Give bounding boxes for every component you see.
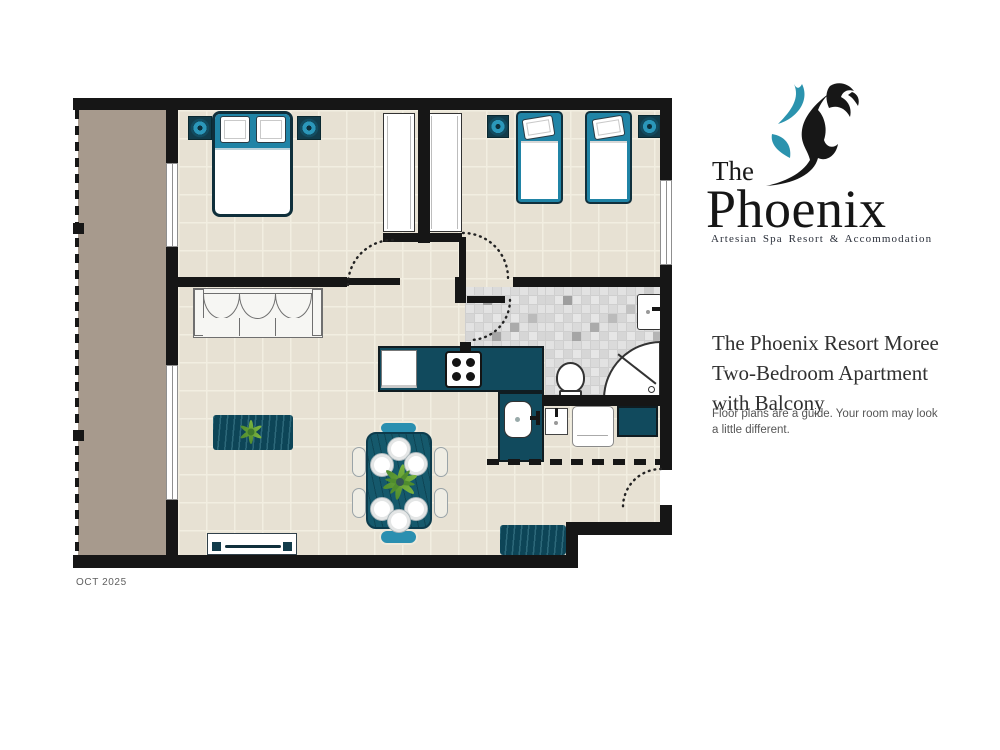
opening-dashed-line xyxy=(487,459,660,465)
sofa xyxy=(193,288,323,338)
wardrobe xyxy=(383,113,415,232)
logo-name: Phoenix xyxy=(706,178,887,240)
dining-chair xyxy=(352,447,366,477)
tv-icon xyxy=(225,545,281,548)
nightstand-lamp-icon xyxy=(638,115,661,138)
date-label: OCT 2025 xyxy=(76,577,127,588)
nightstand-lamp-icon xyxy=(297,116,321,140)
stove xyxy=(445,351,482,388)
plate xyxy=(387,509,411,533)
entry-rug xyxy=(500,525,566,555)
wall xyxy=(418,110,430,243)
disclaimer-text: Floor plans are a guide. Your room may l… xyxy=(712,406,944,438)
nightstand-lamp-icon xyxy=(188,116,212,140)
fridge xyxy=(381,350,417,388)
laundry-counter xyxy=(617,406,658,437)
kitchen-sink xyxy=(504,401,532,438)
railing-post xyxy=(73,223,84,234)
single-bed xyxy=(585,111,632,204)
dining-chair xyxy=(352,488,366,518)
washing-machine xyxy=(572,406,614,447)
door-swing-arc xyxy=(463,233,508,278)
faucet-icon xyxy=(555,408,558,417)
pillow xyxy=(256,116,286,143)
wall xyxy=(660,265,672,470)
floor-plan xyxy=(70,95,682,575)
wall xyxy=(513,277,672,287)
wall xyxy=(166,277,347,287)
logo-tagline: Artesian Spa Resort & Accommodation xyxy=(711,233,941,245)
window xyxy=(660,180,672,265)
window xyxy=(166,365,178,500)
laundry-basin xyxy=(545,408,568,435)
faucet-icon xyxy=(536,411,540,425)
wall xyxy=(542,395,672,406)
plant-icon xyxy=(380,462,420,502)
window xyxy=(166,163,178,247)
toilet xyxy=(556,362,585,393)
wall xyxy=(78,98,672,110)
balcony-railing xyxy=(75,110,79,555)
pillow xyxy=(592,115,626,141)
wardrobe xyxy=(427,113,462,232)
pillow xyxy=(220,116,250,143)
single-bed xyxy=(516,111,563,204)
plant-icon xyxy=(236,417,266,447)
wall xyxy=(460,342,471,351)
wall xyxy=(166,110,178,163)
door-swing-arc xyxy=(348,240,393,285)
apartment-title: The Phoenix Resort Moree Two-Bedroom Apa… xyxy=(712,328,962,418)
wall xyxy=(660,110,672,180)
dining-chair xyxy=(434,447,448,477)
door-swing-arc xyxy=(623,469,661,507)
tv-console xyxy=(207,533,297,555)
nightstand-lamp-icon xyxy=(487,115,509,138)
door-swing-arc xyxy=(470,300,510,340)
railing-post xyxy=(73,430,84,441)
wall xyxy=(578,522,672,535)
pillow xyxy=(522,115,556,141)
dining-chair xyxy=(434,488,448,518)
exterior-cutout xyxy=(578,535,674,557)
title-line-2: Two-Bedroom Apartment xyxy=(712,358,962,388)
drain-icon xyxy=(648,386,655,393)
wall xyxy=(166,500,178,555)
wall xyxy=(166,247,178,365)
balcony xyxy=(78,110,166,555)
wall xyxy=(455,277,466,303)
wall xyxy=(73,555,578,568)
phoenix-logo-icon xyxy=(748,82,878,192)
vanity-basin xyxy=(637,294,662,330)
title-line-1: The Phoenix Resort Moree xyxy=(712,328,962,358)
wall xyxy=(383,233,462,242)
